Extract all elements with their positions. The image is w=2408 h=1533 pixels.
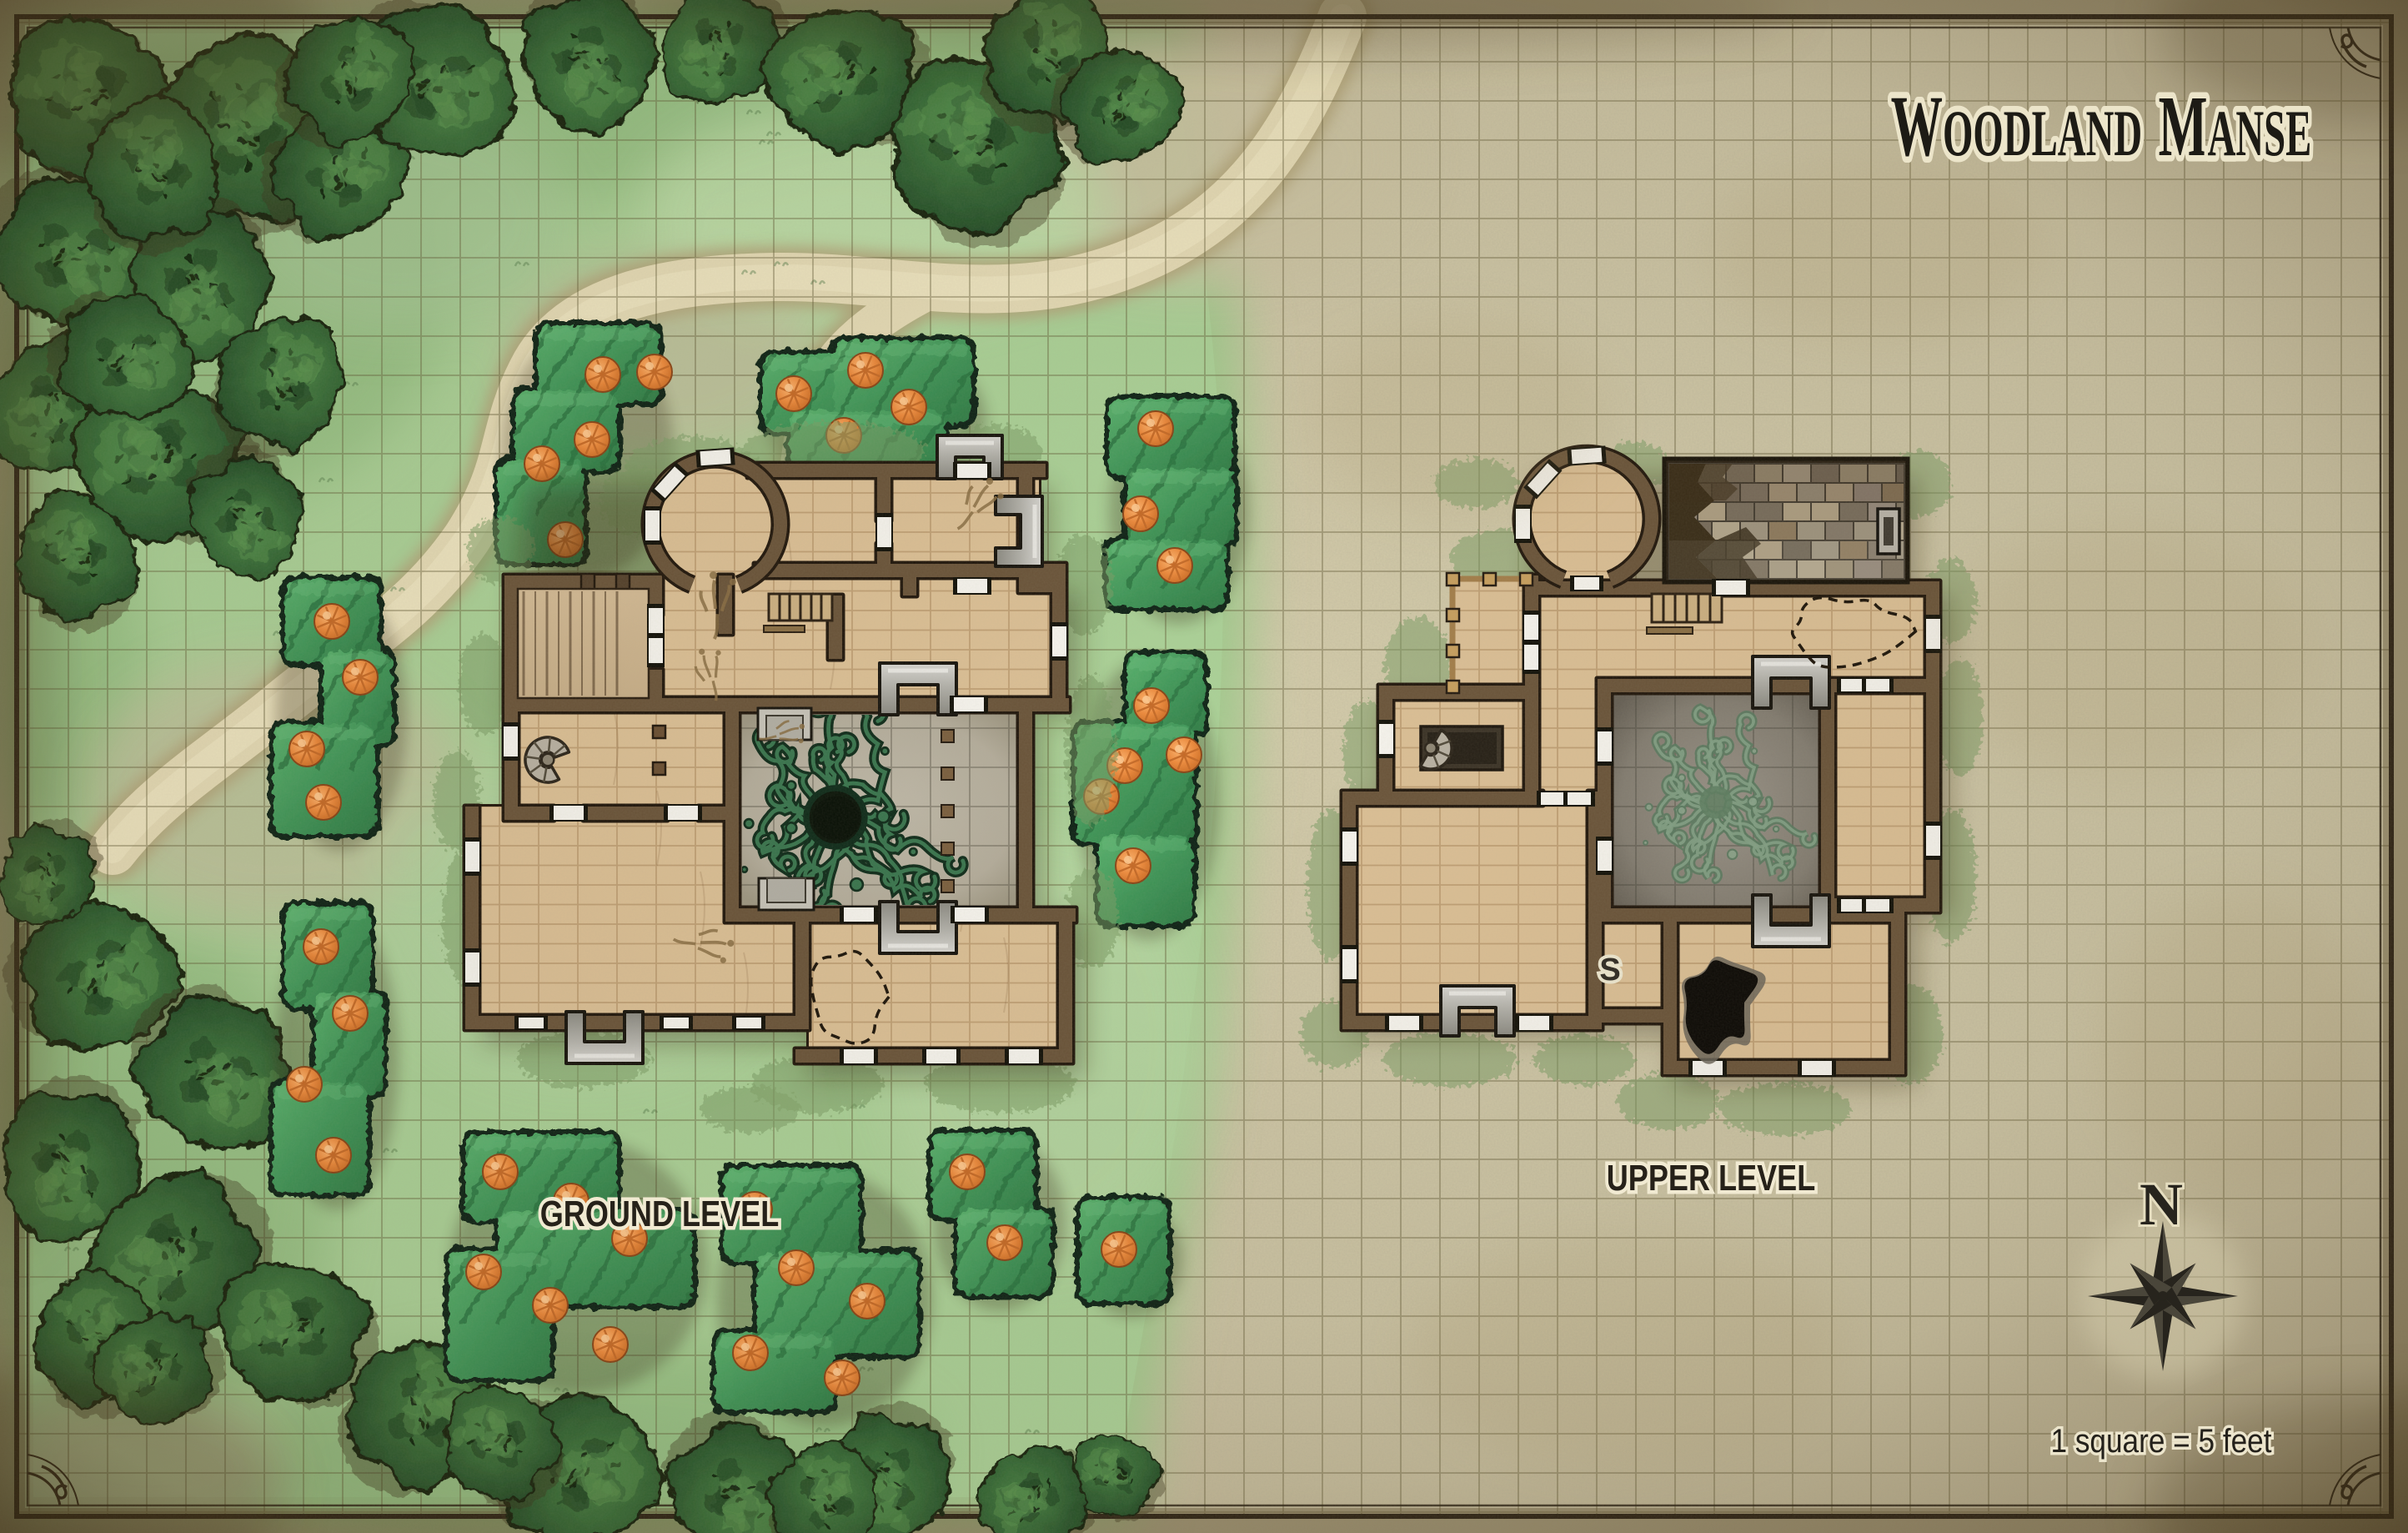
svg-text:N: N	[2140, 1171, 2183, 1238]
svg-text:GROUND LEVEL: GROUND LEVEL	[540, 1194, 780, 1234]
svg-text:1 square = 5 feet: 1 square = 5 feet	[2050, 1422, 2272, 1460]
svg-text:UPPER LEVEL: UPPER LEVEL	[1607, 1158, 1816, 1199]
